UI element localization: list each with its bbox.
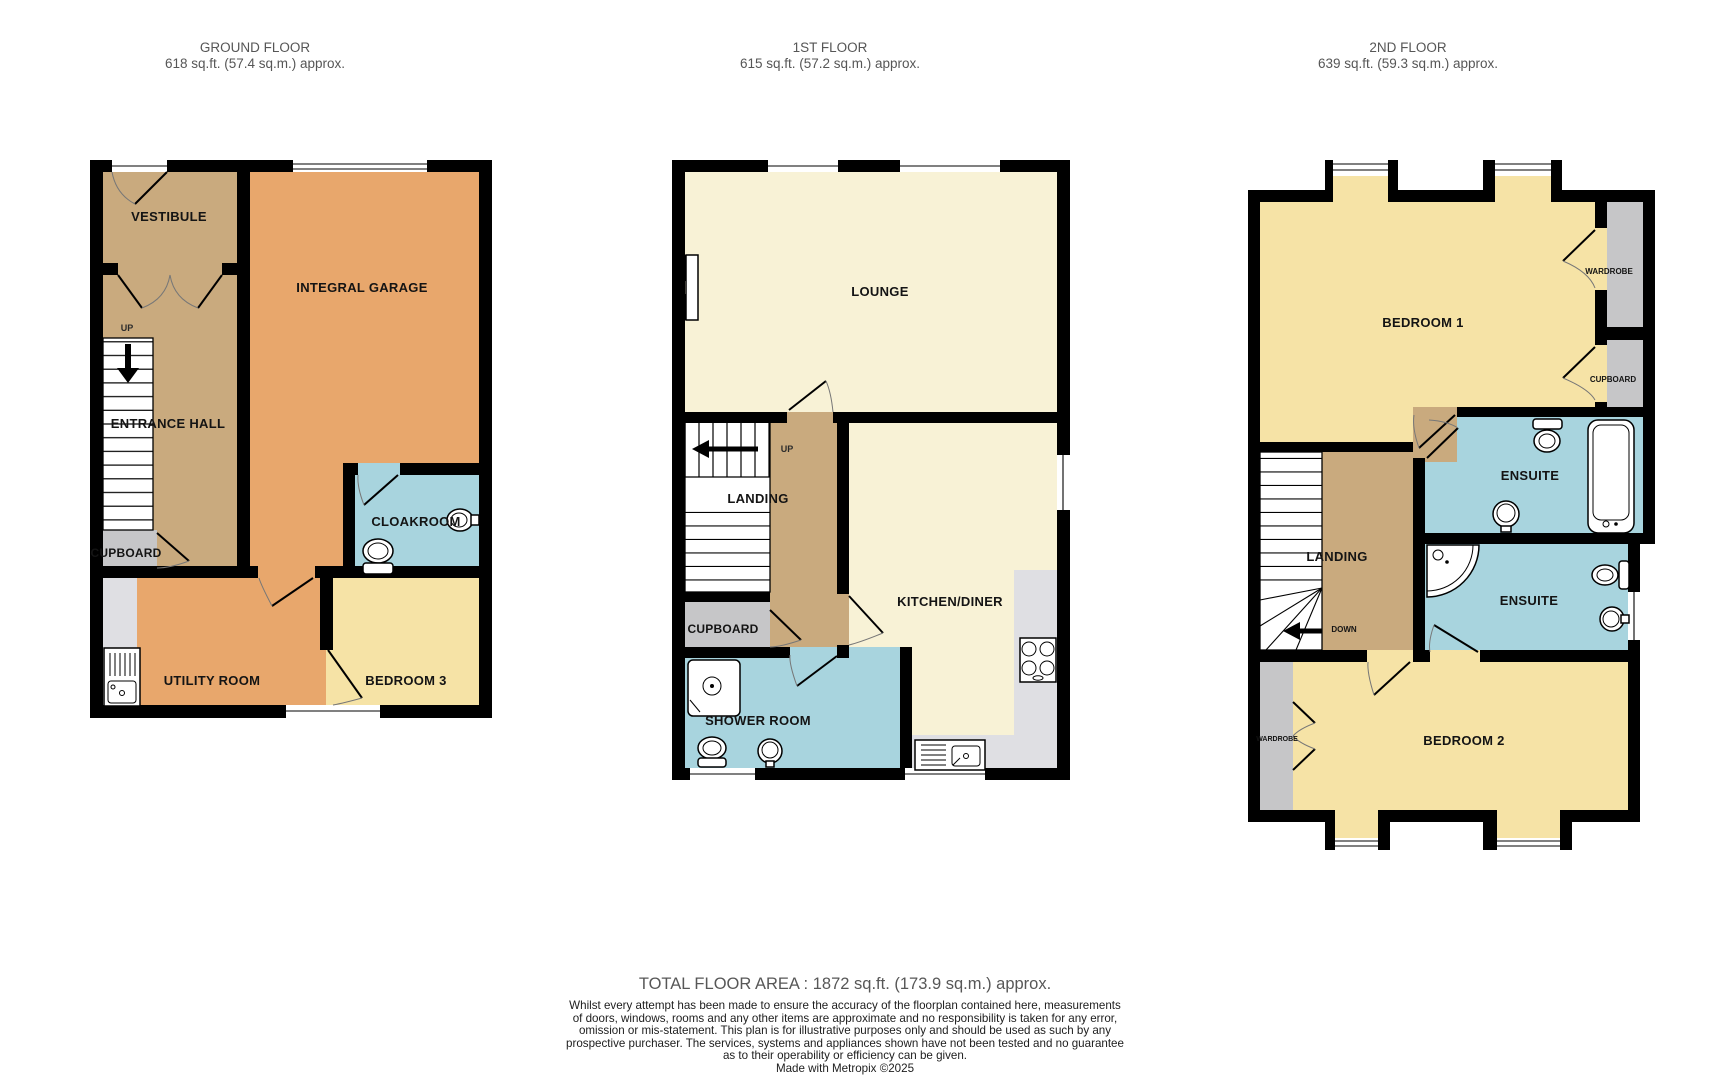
room-wardrobe [1607, 202, 1643, 327]
metropix-credit: Made with Metropix ©2025 [495, 1063, 1195, 1076]
second-floor-area: 639 sq.ft. (59.3 sq.m.) approx. [1258, 56, 1558, 72]
room-label-shower: SHOWER ROOM [705, 713, 811, 728]
floor-plan-ground: VESTIBULE INTEGRAL GARAGE ENTRANCE HALL … [80, 140, 500, 740]
second-floor-title: 2ND FLOOR [1258, 40, 1558, 56]
toilet-icon [1533, 419, 1562, 452]
disclaimer-line: Whilst every attempt has been made to en… [495, 1000, 1195, 1013]
ground-floor-header: GROUND FLOOR 618 sq.ft. (57.4 sq.m.) app… [105, 40, 405, 72]
room-label-bedroom1: BEDROOM 1 [1382, 315, 1463, 330]
hob-icon [1020, 638, 1056, 682]
shower-icon [688, 660, 740, 716]
room-label-wardrobe2: WARDROBE [1256, 736, 1298, 743]
room-label-cupboard: CUPBOARD [91, 546, 162, 560]
room-label-landing: LANDING [1306, 549, 1367, 564]
room-label-cloakroom: CLOAKROOM [371, 514, 460, 529]
bay-interior [1497, 810, 1560, 838]
room-label-cupboard: CUPBOARD [688, 622, 759, 636]
room-label-ensuite1: ENSUITE [1501, 468, 1559, 483]
room-bedroom2 [1260, 650, 1628, 810]
first-floor-header: 1ST FLOOR 615 sq.ft. (57.2 sq.m.) approx… [680, 40, 980, 72]
room-label-cupboard: CUPBOARD [1590, 375, 1636, 384]
bath-icon [1588, 420, 1634, 533]
room-label-kitchen: KITCHEN/DINER [897, 594, 1003, 609]
room-label-garage: INTEGRAL GARAGE [296, 280, 427, 295]
ground-floor-area: 618 sq.ft. (57.4 sq.m.) approx. [105, 56, 405, 72]
room-label-ensuite2: ENSUITE [1500, 593, 1558, 608]
room-label-bedroom2: BEDROOM 2 [1423, 733, 1504, 748]
toilet-icon [363, 539, 393, 574]
ground-floor-title: GROUND FLOOR [105, 40, 405, 56]
room-label-bedroom3: BEDROOM 3 [365, 673, 446, 688]
footer: TOTAL FLOOR AREA : 1872 sq.ft. (173.9 sq… [495, 974, 1195, 1076]
stairs-down-label: DOWN [1331, 625, 1357, 634]
bay-interior [1335, 810, 1378, 838]
room-cupboard-second [1607, 340, 1643, 407]
toilet-icon [698, 737, 726, 767]
bay-interior [1495, 176, 1551, 202]
second-floor-header: 2ND FLOOR 639 sq.ft. (59.3 sq.m.) approx… [1258, 40, 1558, 72]
disclaimer-line: omission or mis-statement. This plan is … [495, 1025, 1195, 1038]
room-label-utility: UTILITY ROOM [164, 673, 261, 688]
sink-unit-icon [104, 648, 140, 706]
room-label-vestibule: VESTIBULE [131, 209, 207, 224]
floorplan-page: GROUND FLOOR 618 sq.ft. (57.4 sq.m.) app… [0, 0, 1736, 1080]
room-label-landing: LANDING [727, 491, 788, 506]
total-floor-area: TOTAL FLOOR AREA : 1872 sq.ft. (173.9 sq… [495, 974, 1195, 994]
first-floor-area: 615 sq.ft. (57.2 sq.m.) approx. [680, 56, 980, 72]
stairs-up-label: UP [121, 323, 134, 333]
room-label-entrance-hall: ENTRANCE HALL [111, 416, 225, 431]
floor-plan-second: BEDROOM 1 WARDROBE CUPBOARD ENSUITE ENSU… [1230, 140, 1670, 870]
floor-plan-first: LOUNGE LANDING UP CUPBOARD SHOWER ROOM K… [660, 140, 1080, 800]
bay-interior [1333, 176, 1388, 202]
stairs-ground [103, 338, 153, 530]
stairs-up-label: UP [781, 444, 794, 454]
room-label-wardrobe: WARDROBE [1585, 267, 1633, 276]
kitchen-sink-icon [915, 740, 985, 770]
stairs-first [685, 420, 770, 592]
room-label-lounge: LOUNGE [851, 284, 908, 299]
first-floor-title: 1ST FLOOR [680, 40, 980, 56]
